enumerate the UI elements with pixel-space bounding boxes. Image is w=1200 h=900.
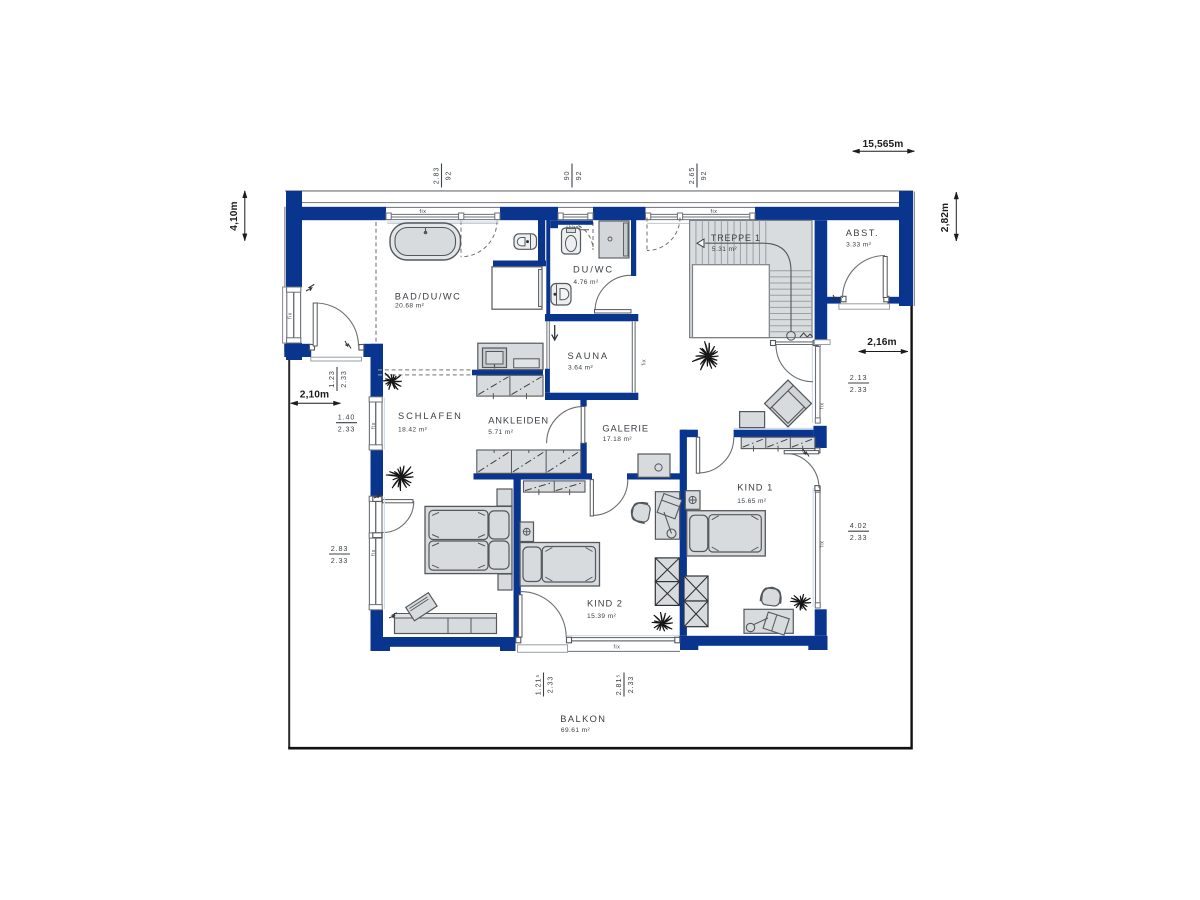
svg-text:2.33: 2.33 <box>850 533 868 542</box>
svg-text:5.31 m²: 5.31 m² <box>712 246 738 253</box>
svg-text:BALKON: BALKON <box>560 714 606 724</box>
svg-text:2,82m: 2,82m <box>940 203 951 232</box>
svg-text:92: 92 <box>699 171 708 181</box>
svg-text:KIND 2: KIND 2 <box>587 598 623 608</box>
svg-text:Ablage: Ablage <box>538 244 543 261</box>
svg-text:fix: fix <box>614 644 621 650</box>
svg-text:2.81⁵: 2.81⁵ <box>614 674 623 695</box>
svg-text:fix: fix <box>711 209 718 215</box>
svg-text:fix: fix <box>642 359 648 366</box>
svg-text:3.33 m²: 3.33 m² <box>846 242 872 249</box>
svg-text:fix: fix <box>371 549 377 556</box>
svg-text:2.83: 2.83 <box>331 544 349 553</box>
svg-text:2.33: 2.33 <box>338 425 356 434</box>
svg-text:2,16m: 2,16m <box>867 337 896 348</box>
svg-text:SCHLAFEN: SCHLAFEN <box>398 411 463 421</box>
svg-text:2.33: 2.33 <box>850 385 868 394</box>
svg-text:2.33: 2.33 <box>331 556 349 565</box>
svg-text:fix: fix <box>371 422 377 429</box>
svg-text:92: 92 <box>574 171 583 181</box>
svg-text:15.39 m²: 15.39 m² <box>587 613 617 620</box>
svg-text:ABST.: ABST. <box>846 228 879 238</box>
svg-text:20.68 m²: 20.68 m² <box>395 303 425 310</box>
svg-text:2.33: 2.33 <box>626 676 635 694</box>
svg-text:2,10m: 2,10m <box>300 390 329 401</box>
svg-text:1.23: 1.23 <box>327 370 336 388</box>
svg-text:17.18 m²: 17.18 m² <box>603 436 633 443</box>
svg-text:SAUNA: SAUNA <box>568 351 610 361</box>
svg-text:2.65: 2.65 <box>687 167 696 185</box>
svg-text:2.13: 2.13 <box>850 373 868 382</box>
svg-text:fix: fix <box>288 312 294 319</box>
svg-text:4.02: 4.02 <box>850 521 868 530</box>
svg-text:5.71 m²: 5.71 m² <box>488 429 514 436</box>
svg-text:18.42 m²: 18.42 m² <box>398 426 428 433</box>
svg-text:4.76 m²: 4.76 m² <box>573 279 599 286</box>
svg-text:3.64 m²: 3.64 m² <box>568 365 594 372</box>
svg-text:TREPPE 1: TREPPE 1 <box>711 233 761 243</box>
svg-text:ANKLEIDEN: ANKLEIDEN <box>488 415 549 425</box>
svg-text:2.33: 2.33 <box>339 370 348 388</box>
svg-text:fix: fix <box>820 402 826 409</box>
svg-text:90: 90 <box>562 171 571 181</box>
svg-text:15.65 m²: 15.65 m² <box>737 498 767 505</box>
svg-text:DU/WC: DU/WC <box>573 264 614 274</box>
svg-text:KIND 1: KIND 1 <box>737 483 773 493</box>
svg-text:92: 92 <box>443 171 452 181</box>
svg-text:fix: fix <box>820 541 826 548</box>
svg-text:15,565m: 15,565m <box>863 139 904 150</box>
svg-text:1.40: 1.40 <box>338 413 356 422</box>
svg-text:fix: fix <box>420 209 427 215</box>
svg-text:4,10m: 4,10m <box>229 201 240 230</box>
svg-text:GALERIE: GALERIE <box>602 424 649 434</box>
svg-text:1.21⁵: 1.21⁵ <box>533 674 542 695</box>
svg-text:BAD/DU/WC: BAD/DU/WC <box>395 291 462 301</box>
svg-text:2.83: 2.83 <box>431 167 440 185</box>
svg-text:2.33: 2.33 <box>545 676 554 694</box>
svg-text:69.61 m²: 69.61 m² <box>561 727 591 734</box>
